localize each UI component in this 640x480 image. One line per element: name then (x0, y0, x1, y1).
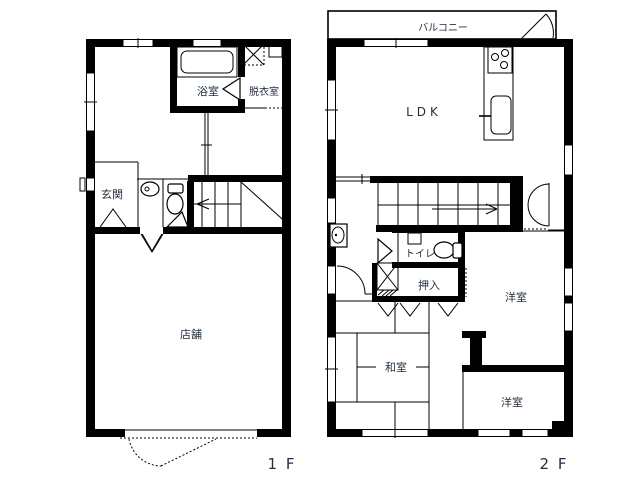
f2-toilet-icon (434, 242, 454, 258)
room-label-dressing: 脱衣室 (249, 85, 279, 98)
floor-label-1f: 1 F (268, 455, 297, 473)
f1-windows (80, 38, 257, 466)
f1-entry-door-opening (87, 178, 95, 191)
f2-toilet-basin (408, 233, 421, 244)
f2-kitchen (479, 47, 513, 140)
toilet-icon (167, 194, 183, 214)
f2-windows (325, 38, 573, 438)
f1-entrance-door-swing (98, 209, 128, 230)
toilet-tank-icon (168, 184, 183, 193)
f2-washitsu-door-3 (438, 303, 458, 316)
kitchen-sink-icon (491, 96, 511, 134)
f2-toilet-door-icon (378, 239, 392, 263)
room-label-toilet: トイレ (405, 249, 435, 260)
f2-outer-walls (327, 39, 573, 437)
floor-plan-canvas: 浴室 脱衣室 玄関 店舗 1 F (0, 0, 640, 480)
f1-shop-walls (95, 227, 291, 252)
floor-plan-page: 浴室 脱衣室 玄関 店舗 1 F (0, 0, 640, 480)
room-label-shop: 店舗 (180, 327, 202, 341)
room-label-japanese: 和室 (385, 360, 407, 374)
f1-toilet-door-icon (167, 212, 188, 227)
f2-toilet-room (378, 227, 465, 268)
washbasin-icon (141, 182, 159, 196)
f1-stairs (188, 175, 291, 227)
room-label-entrance: 玄関 (101, 187, 123, 201)
room-label-western-upper: 洋室 (505, 290, 527, 304)
room-label-bath: 浴室 (197, 84, 219, 98)
f2-washitsu-door-2 (400, 303, 420, 316)
room-label-closet: 押入 (418, 278, 440, 292)
floor-2f: バルコニー LDK トイレ 押入 洋室 和室 洋室 2 F (325, 11, 573, 473)
f2-hall-door-arc (337, 266, 365, 294)
f1-outer-walls (86, 39, 291, 437)
room-label-balcony: バルコニー (418, 22, 468, 34)
room-label-western-lower: 洋室 (501, 395, 523, 409)
f2-closet-door-arc-bottom (528, 205, 549, 226)
f1-dressing-room (243, 44, 282, 108)
floor-1f: 浴室 脱衣室 玄関 店舗 1 F (80, 38, 296, 473)
f2-balcony-door-leaf (521, 14, 546, 39)
f2-balcony-door-arc (546, 14, 553, 38)
f2-closet-door-arc-top (528, 184, 549, 205)
f2-stairs (370, 176, 564, 232)
f1-hall-partition (201, 113, 212, 177)
floor-label-2f: 2 F (540, 455, 569, 473)
f1-entry-door-leaf (80, 178, 85, 191)
f1-bath-door-icon (223, 78, 240, 100)
f2-hall-door-leaf (328, 266, 336, 294)
room-label-ldk: LDK (406, 105, 442, 119)
f1-toilet-room (167, 181, 194, 228)
f1-bathroom (170, 45, 245, 113)
f1-storefront-door-arc (129, 439, 161, 466)
